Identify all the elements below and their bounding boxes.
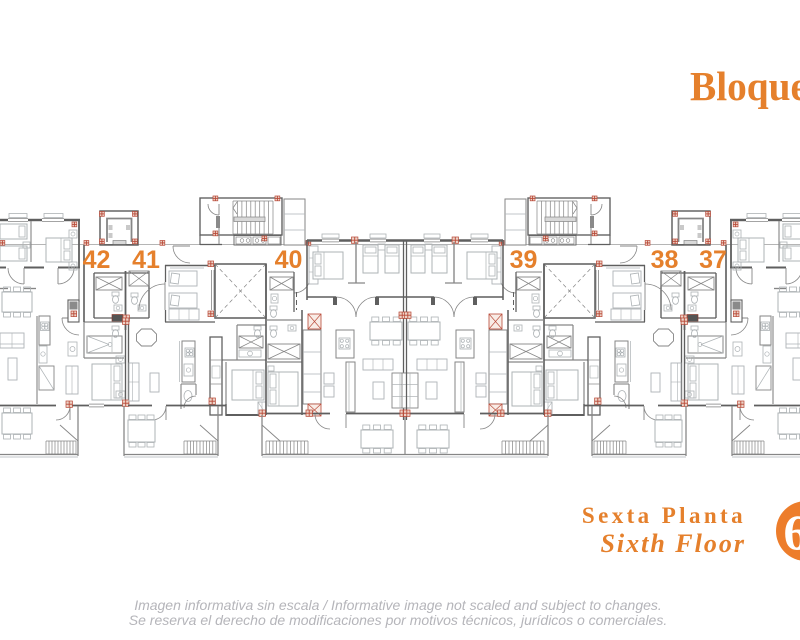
svg-text:Sixth Floor: Sixth Floor — [600, 529, 746, 558]
svg-text:41: 41 — [132, 246, 160, 274]
svg-text:Se reserva el derecho de modif: Se reserva el derecho de modificaciones … — [129, 612, 667, 628]
svg-text:38: 38 — [651, 246, 679, 274]
svg-text:6: 6 — [784, 504, 800, 560]
svg-text:Sexta Planta: Sexta Planta — [582, 503, 746, 528]
svg-text:Bloque: Bloque — [690, 63, 800, 109]
svg-text:39: 39 — [510, 246, 538, 274]
svg-text:Imagen informativa sin escala: Imagen informativa sin escala / Informat… — [134, 597, 662, 613]
svg-text:42: 42 — [83, 246, 111, 274]
svg-text:37: 37 — [699, 246, 727, 274]
svg-text:40: 40 — [275, 246, 303, 274]
